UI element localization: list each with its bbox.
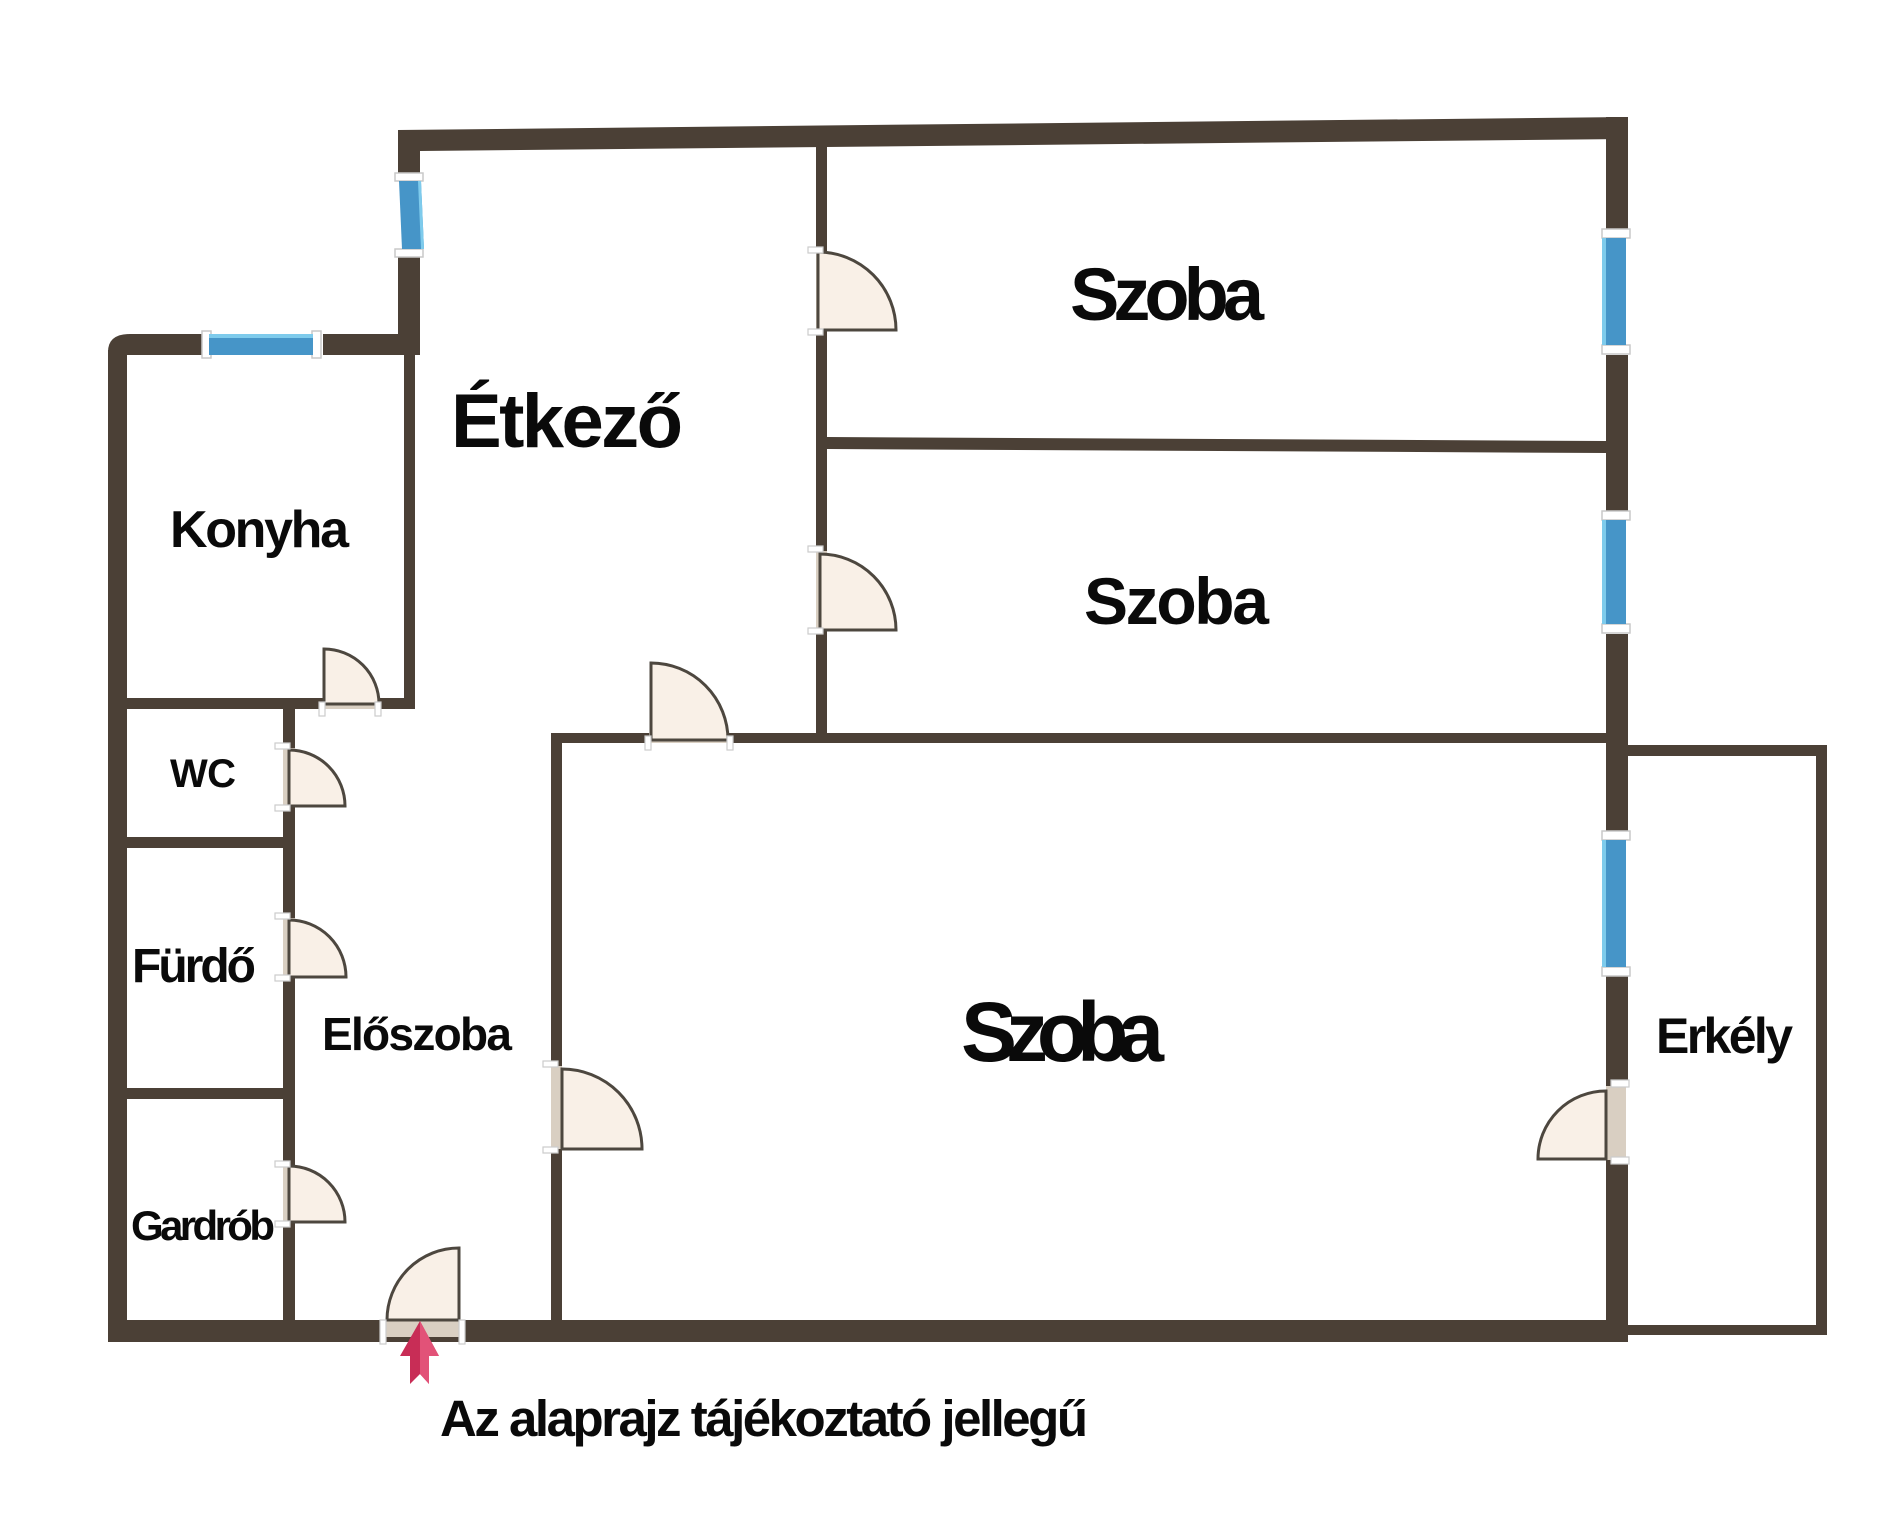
svg-text:Fürdő: Fürdő (132, 940, 256, 993)
svg-text:Gardrób: Gardrób (131, 1202, 275, 1249)
svg-text:Szoba: Szoba (961, 985, 1165, 1079)
svg-text:Erkély: Erkély (1656, 1008, 1793, 1064)
svg-text:Étkező: Étkező (451, 379, 683, 464)
svg-text:Szoba: Szoba (1084, 564, 1270, 638)
svg-text:Szoba: Szoba (1070, 253, 1265, 336)
svg-text:Előszoba: Előszoba (322, 1008, 512, 1060)
svg-text:WC: WC (170, 752, 236, 796)
svg-text:Konyha: Konyha (170, 501, 350, 559)
svg-text:Az alaprajz tájékoztató jelleg: Az alaprajz tájékoztató jellegű (440, 1390, 1088, 1447)
